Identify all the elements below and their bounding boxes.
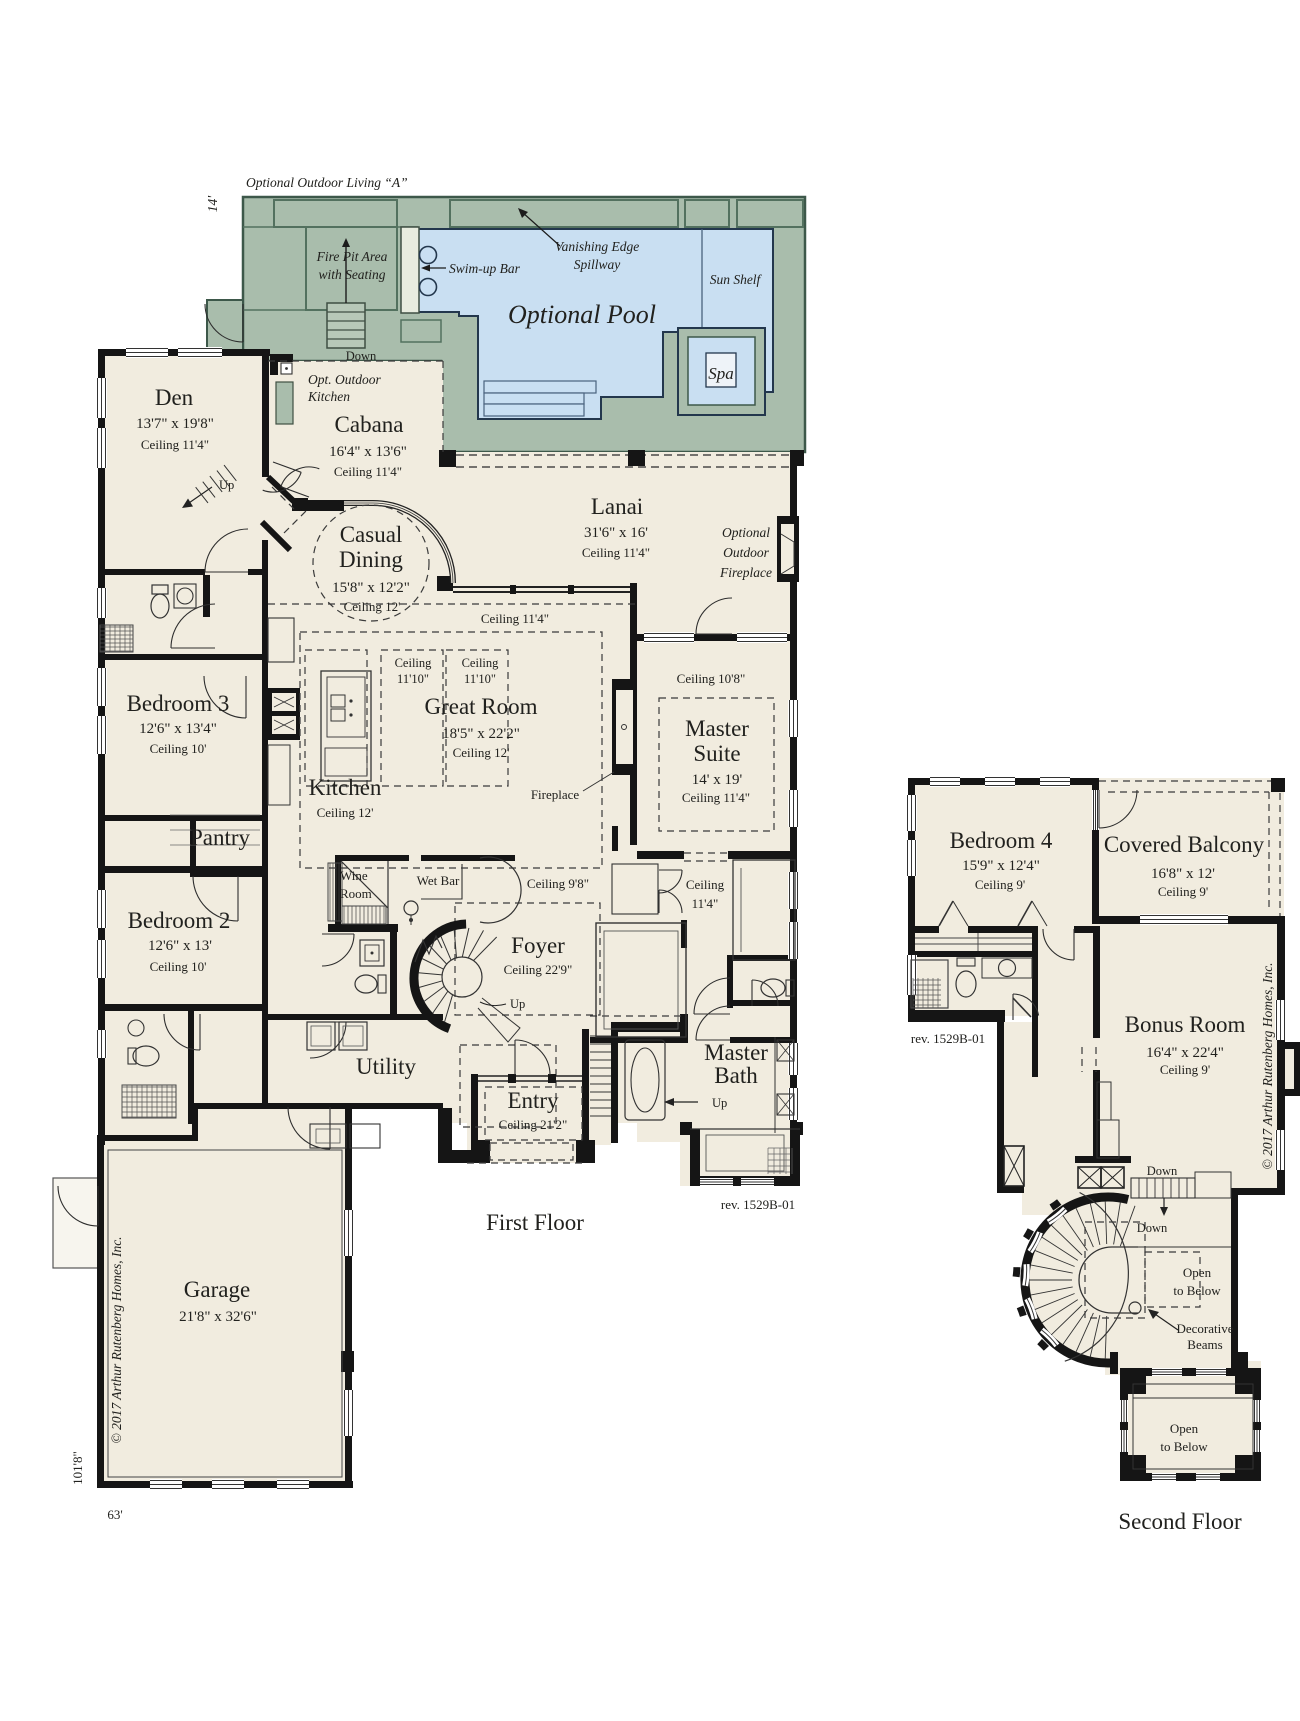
svg-text:to Below: to Below xyxy=(1173,1283,1221,1298)
svg-text:Spillway: Spillway xyxy=(574,257,621,272)
svg-text:Ceiling 11'4": Ceiling 11'4" xyxy=(682,790,750,805)
svg-text:Spa: Spa xyxy=(708,364,734,383)
svg-text:Entry: Entry xyxy=(507,1088,559,1113)
svg-text:16'4" x 22'4": 16'4" x 22'4" xyxy=(1146,1045,1224,1061)
svg-text:14' x 19': 14' x 19' xyxy=(692,772,743,788)
svg-text:Ceiling: Ceiling xyxy=(395,656,433,670)
svg-text:Fire Pit Area: Fire Pit Area xyxy=(316,249,388,264)
svg-text:Pantry: Pantry xyxy=(190,825,251,850)
svg-text:Bedroom 3: Bedroom 3 xyxy=(127,691,230,716)
svg-text:15'8" x 12'2": 15'8" x 12'2" xyxy=(332,580,410,596)
svg-text:Decorative: Decorative xyxy=(1176,1321,1233,1336)
svg-text:Outdoor: Outdoor xyxy=(723,545,770,560)
svg-text:Ceiling 10'8": Ceiling 10'8" xyxy=(677,671,746,686)
svg-text:Garage: Garage xyxy=(184,1277,250,1302)
svg-text:to Below: to Below xyxy=(1160,1439,1208,1454)
svg-text:© 2017 Arthur Rutenberg Homes,: © 2017 Arthur Rutenberg Homes, Inc. xyxy=(109,1236,124,1443)
svg-text:Cabana: Cabana xyxy=(335,412,404,437)
svg-text:Vanishing Edge: Vanishing Edge xyxy=(555,239,639,254)
svg-text:Ceiling: Ceiling xyxy=(686,877,725,892)
svg-text:Wet Bar: Wet Bar xyxy=(417,873,460,888)
svg-text:with Seating: with Seating xyxy=(318,267,385,282)
svg-text:Casual: Casual xyxy=(340,522,403,547)
svg-text:Ceiling 10': Ceiling 10' xyxy=(150,741,207,756)
svg-text:21'8" x 32'6": 21'8" x 32'6" xyxy=(179,1309,257,1325)
svg-text:Open: Open xyxy=(1170,1421,1199,1436)
svg-text:101'8": 101'8" xyxy=(70,1451,85,1485)
svg-text:11'10": 11'10" xyxy=(464,672,496,686)
svg-text:Down: Down xyxy=(1137,1221,1168,1235)
svg-text:Ceiling 21'2": Ceiling 21'2" xyxy=(499,1117,568,1132)
svg-text:31'6" x 16': 31'6" x 16' xyxy=(584,525,648,541)
svg-text:Ceiling 11'4": Ceiling 11'4" xyxy=(582,545,650,560)
svg-text:Fireplace: Fireplace xyxy=(719,565,772,580)
svg-text:Kitchen: Kitchen xyxy=(309,775,382,800)
svg-text:Ceiling 9': Ceiling 9' xyxy=(975,877,1025,892)
svg-text:rev. 1529B-01: rev. 1529B-01 xyxy=(721,1197,795,1212)
svg-text:Opt. Outdoor: Opt. Outdoor xyxy=(308,372,382,387)
svg-text:14': 14' xyxy=(205,195,220,213)
svg-text:Dining: Dining xyxy=(339,547,403,572)
svg-text:Optional Outdoor Living “A”: Optional Outdoor Living “A” xyxy=(246,175,408,190)
svg-text:Wine: Wine xyxy=(340,868,368,883)
svg-text:First Floor: First Floor xyxy=(486,1210,584,1235)
svg-text:Ceiling 9'8": Ceiling 9'8" xyxy=(527,876,589,891)
svg-text:Ceiling 12': Ceiling 12' xyxy=(453,745,510,760)
svg-text:Room: Room xyxy=(340,886,372,901)
svg-text:Optional Pool: Optional Pool xyxy=(508,300,656,329)
svg-text:Lanai: Lanai xyxy=(591,494,643,519)
svg-text:Ceiling 10': Ceiling 10' xyxy=(150,959,207,974)
svg-text:Beams: Beams xyxy=(1187,1337,1222,1352)
svg-text:Kitchen: Kitchen xyxy=(307,389,350,404)
svg-text:Down: Down xyxy=(346,349,377,363)
svg-text:Swim-up Bar: Swim-up Bar xyxy=(449,261,521,276)
svg-text:Covered Balcony: Covered Balcony xyxy=(1104,832,1265,857)
svg-text:Fireplace: Fireplace xyxy=(531,787,580,802)
svg-text:Bath: Bath xyxy=(714,1063,758,1088)
svg-text:13'7" x 19'8": 13'7" x 19'8" xyxy=(136,416,214,432)
svg-text:Ceiling 22'9": Ceiling 22'9" xyxy=(504,962,573,977)
svg-text:Up: Up xyxy=(712,1096,727,1110)
svg-text:Suite: Suite xyxy=(693,741,740,766)
svg-text:Ceiling 9': Ceiling 9' xyxy=(1158,884,1208,899)
svg-text:Optional: Optional xyxy=(722,525,770,540)
svg-text:Bonus Room: Bonus Room xyxy=(1125,1012,1246,1037)
svg-text:Ceiling 11'4": Ceiling 11'4" xyxy=(334,464,402,479)
svg-text:Foyer: Foyer xyxy=(511,933,565,958)
svg-text:Great Room: Great Room xyxy=(424,694,537,719)
svg-text:rev. 1529B-01: rev. 1529B-01 xyxy=(911,1031,985,1046)
svg-text:Bedroom 4: Bedroom 4 xyxy=(950,828,1053,853)
svg-text:Ceiling 12': Ceiling 12' xyxy=(344,599,401,614)
svg-text:15'9" x 12'4": 15'9" x 12'4" xyxy=(962,858,1040,874)
svg-text:12'6" x 13'4": 12'6" x 13'4" xyxy=(139,721,217,737)
svg-text:Up: Up xyxy=(510,997,525,1011)
svg-text:16'8" x 12': 16'8" x 12' xyxy=(1151,866,1215,882)
svg-text:Ceiling 11'4": Ceiling 11'4" xyxy=(481,611,549,626)
svg-text:Ceiling 9': Ceiling 9' xyxy=(1160,1062,1210,1077)
svg-text:Bedroom 2: Bedroom 2 xyxy=(128,908,231,933)
svg-text:Master: Master xyxy=(704,1040,768,1065)
svg-text:63': 63' xyxy=(107,1507,122,1522)
svg-text:© 2017 Arthur Rutenberg Homes,: © 2017 Arthur Rutenberg Homes, Inc. xyxy=(1260,962,1275,1169)
svg-text:Ceiling 12': Ceiling 12' xyxy=(317,805,374,820)
svg-text:Open: Open xyxy=(1183,1265,1212,1280)
svg-text:Ceiling: Ceiling xyxy=(462,656,500,670)
svg-text:18'5" x 22'2": 18'5" x 22'2" xyxy=(442,726,520,742)
svg-text:Up: Up xyxy=(219,478,234,492)
svg-text:12'6" x 13': 12'6" x 13' xyxy=(148,938,212,954)
svg-text:Second Floor: Second Floor xyxy=(1118,1509,1242,1534)
svg-text:Den: Den xyxy=(155,385,194,410)
svg-text:11'10": 11'10" xyxy=(397,672,429,686)
svg-text:Down: Down xyxy=(1147,1164,1178,1178)
svg-text:Ceiling 11'4": Ceiling 11'4" xyxy=(141,437,209,452)
svg-text:Utility: Utility xyxy=(356,1054,417,1079)
svg-text:Sun Shelf: Sun Shelf xyxy=(710,272,763,287)
svg-text:11'4": 11'4" xyxy=(692,896,719,911)
svg-text:16'4" x 13'6": 16'4" x 13'6" xyxy=(329,444,407,460)
svg-text:Master: Master xyxy=(685,716,749,741)
